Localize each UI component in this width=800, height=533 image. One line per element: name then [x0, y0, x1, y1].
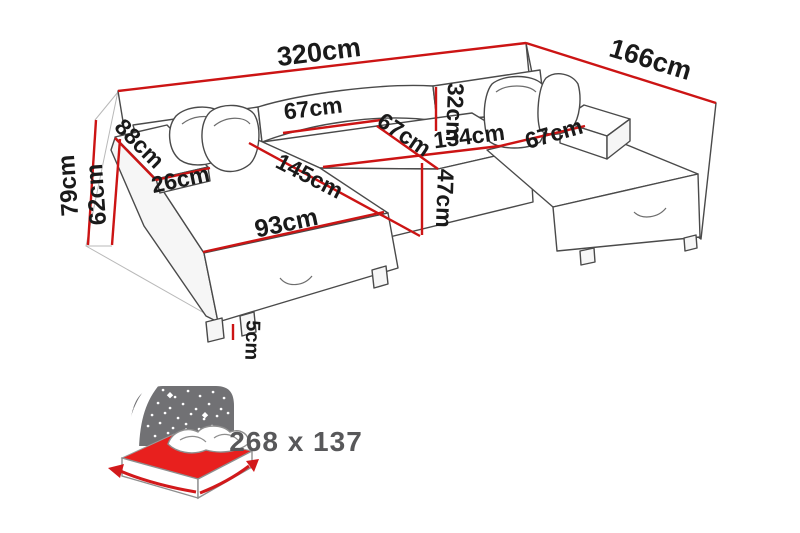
dim-label-seat-height: 47cm	[431, 168, 459, 228]
dim-label-armrest-height: 62cm	[81, 163, 112, 226]
sofa-dimension-diagram: 320cm 166cm 79cm 62cm 88cm 26cm 67cm 67c…	[0, 0, 800, 533]
sofa-right-leg-front	[580, 248, 595, 265]
sofa-left-leg-left	[206, 318, 224, 342]
sofa-left-leg-right	[372, 266, 388, 288]
pillow-left-front	[202, 105, 259, 171]
sleeping-area-label: 268 x 137	[229, 426, 363, 457]
dim-label-leg-height: 5cm	[240, 320, 263, 361]
sofa-drawing	[111, 43, 716, 342]
sofa-pillows-left	[170, 105, 259, 171]
sofa-right-leg-side	[684, 235, 697, 251]
sofa-bed-sleeping-area-icon: 268 x 137	[108, 383, 363, 498]
sofa-dimension-diagram-page: 320cm 166cm 79cm 62cm 88cm 26cm 67cm 67c…	[0, 0, 800, 533]
dim-label-total-height: 79cm	[53, 154, 84, 217]
